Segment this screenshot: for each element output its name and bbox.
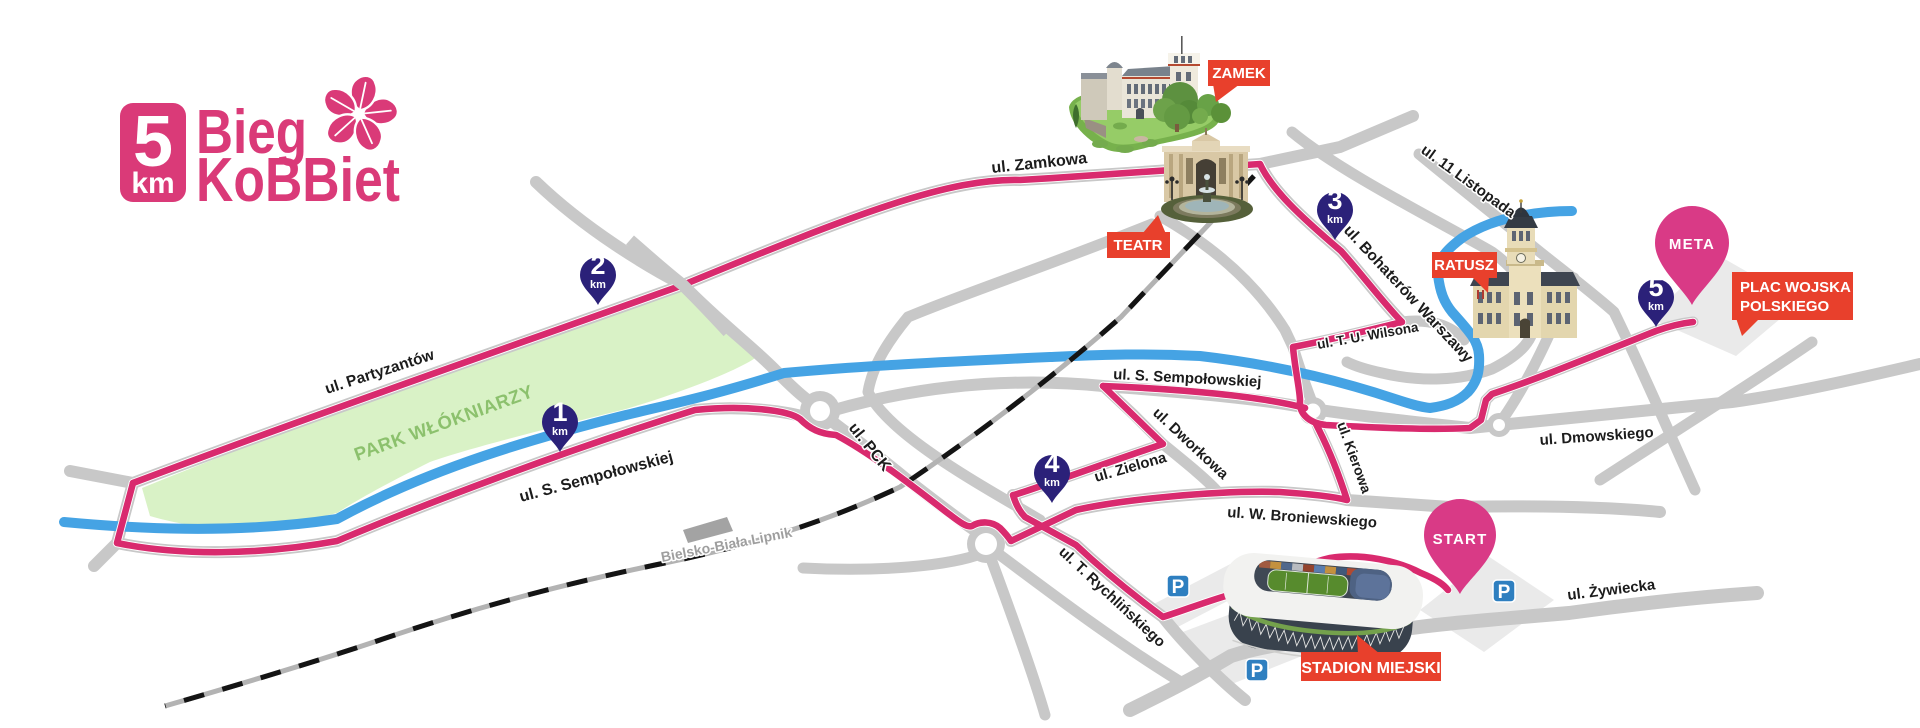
svg-text:STADION MIEJSKI: STADION MIEJSKI bbox=[1301, 660, 1440, 677]
svg-text:P: P bbox=[1172, 577, 1185, 598]
svg-text:ZAMEK: ZAMEK bbox=[1212, 65, 1265, 82]
svg-text:POLSKIEGO: POLSKIEGO bbox=[1740, 298, 1830, 315]
svg-text:km: km bbox=[590, 279, 606, 291]
svg-text:2: 2 bbox=[590, 250, 605, 280]
svg-text:START: START bbox=[1433, 531, 1488, 548]
svg-text:TEATR: TEATR bbox=[1114, 237, 1163, 254]
svg-text:3: 3 bbox=[1327, 185, 1342, 215]
svg-text:4: 4 bbox=[1044, 448, 1059, 478]
svg-text:P: P bbox=[1498, 582, 1511, 603]
svg-text:km: km bbox=[1044, 477, 1060, 489]
svg-text:1: 1 bbox=[552, 397, 567, 427]
svg-text:PLAC WOJSKA: PLAC WOJSKA bbox=[1740, 279, 1851, 296]
svg-text:META: META bbox=[1669, 236, 1715, 253]
svg-text:km: km bbox=[131, 167, 174, 200]
svg-text:RATUSZ: RATUSZ bbox=[1434, 257, 1494, 274]
svg-text:KoBBiet: KoBBiet bbox=[196, 146, 400, 215]
svg-text:5: 5 bbox=[1648, 272, 1663, 302]
svg-text:km: km bbox=[1327, 214, 1343, 226]
svg-text:P: P bbox=[1251, 661, 1264, 682]
svg-text:km: km bbox=[1648, 301, 1664, 313]
svg-text:km: km bbox=[552, 426, 568, 438]
